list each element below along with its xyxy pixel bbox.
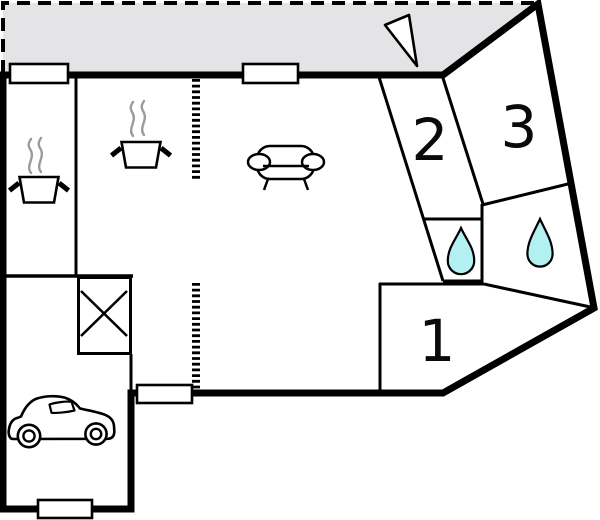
sofa-leg-right xyxy=(304,179,308,190)
pot-handle-left xyxy=(10,183,20,191)
steam-icon xyxy=(39,138,42,172)
car-wheel-rear-hub xyxy=(23,430,34,441)
car-icon xyxy=(9,396,115,447)
floor-plan: 1 2 3 xyxy=(0,0,600,520)
sofa-leg-left xyxy=(264,179,268,190)
window-marker-top-left xyxy=(10,64,68,83)
sofa-armrest-right xyxy=(302,154,324,170)
water-drop-icon xyxy=(448,228,474,274)
cooking-pot-steam-icon xyxy=(112,101,171,168)
room3-bottom-wall xyxy=(482,183,572,205)
water-drops xyxy=(448,219,553,274)
window-marker-garage xyxy=(38,500,92,518)
sofa-icon xyxy=(248,146,324,190)
sofa-armrest-left xyxy=(248,154,270,170)
room-2-label: 2 xyxy=(412,106,449,174)
pot-handle-right xyxy=(59,183,69,191)
window-marker-top-middle xyxy=(243,64,298,83)
water-drop-icon xyxy=(527,219,552,267)
pot-handle-right xyxy=(161,148,171,156)
window-marker-bottom-middle xyxy=(137,385,192,403)
x-crossed-box-icon xyxy=(79,278,131,354)
steam-icon xyxy=(29,139,32,173)
room-1-label: 1 xyxy=(419,307,456,375)
room1-top-diagonal-wall xyxy=(484,284,595,308)
floor-plan-canvas: 1 2 3 xyxy=(0,0,600,520)
windows xyxy=(10,64,298,518)
room-3-label: 3 xyxy=(501,93,538,161)
pot-handle-left xyxy=(112,148,122,156)
pot-body xyxy=(122,142,161,168)
car-wheel-front-hub xyxy=(91,429,101,439)
car-window xyxy=(50,402,75,413)
pot-body xyxy=(20,177,59,203)
steam-icon xyxy=(131,102,134,136)
steam-icon xyxy=(142,101,145,135)
cooking-pot-steam-icon xyxy=(10,138,69,203)
